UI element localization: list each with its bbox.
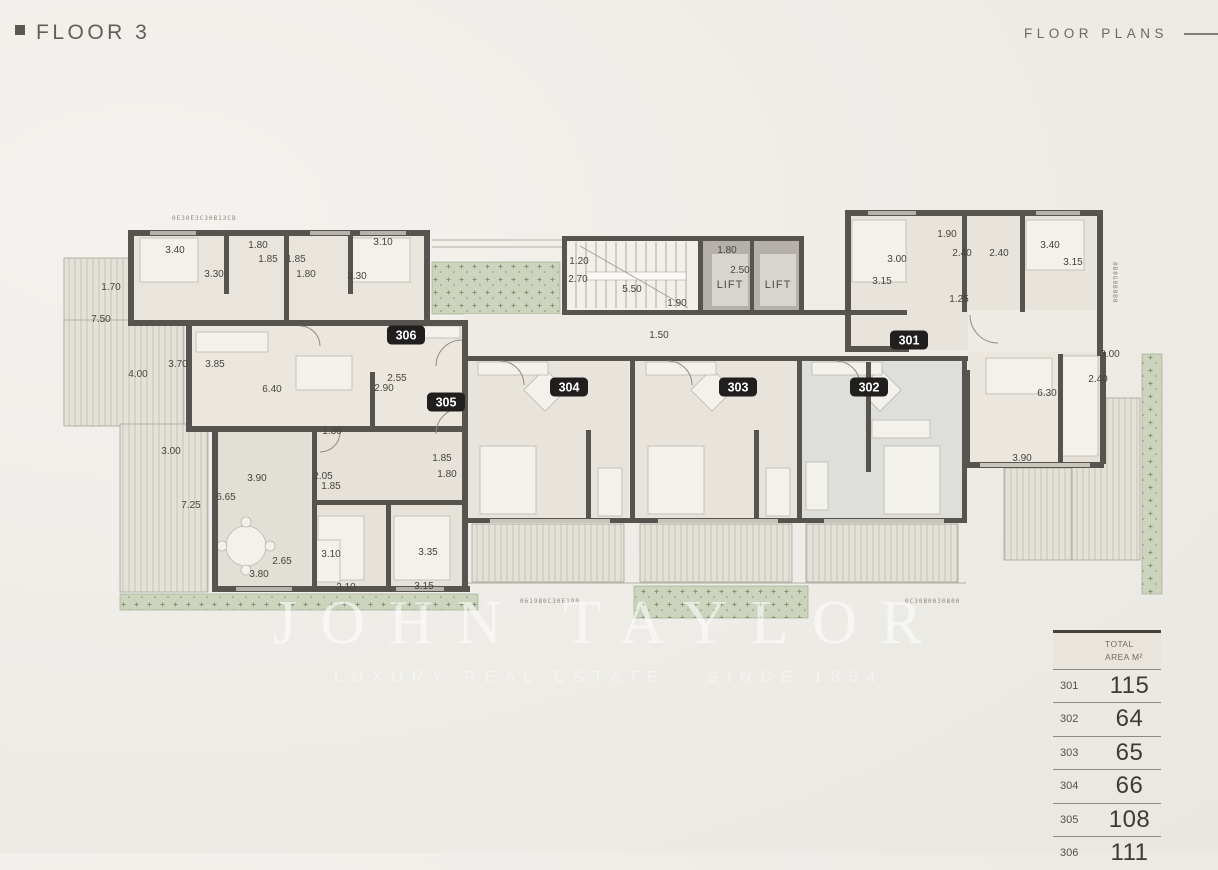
unit-badge-304: 304 — [550, 378, 588, 397]
section-rule — [1184, 33, 1218, 35]
dimension-label: 6.40 — [262, 384, 282, 395]
dimension-label: 1.85 — [432, 453, 452, 464]
dimension-label: 7.50 — [91, 314, 111, 325]
dimension-label: 1.25 — [949, 294, 969, 305]
dimension-label: 7.25 — [181, 500, 201, 511]
dimension-label: 1.85 — [321, 481, 341, 492]
dimension-label: 3.10 — [373, 237, 393, 248]
floor-plan-drawing: LIFT LIFT 3.401.801.851.853.103.301.803.… — [0, 0, 1218, 853]
unit-area-value: 115 — [1098, 672, 1161, 700]
dimension-label: 3.90 — [1012, 453, 1032, 464]
dimension-label: 1.85 — [286, 254, 306, 265]
dimension-label: 3.15 — [1063, 257, 1083, 268]
dimension-label: 3.10 — [321, 549, 341, 560]
table-row-305: 305108 — [1053, 804, 1161, 838]
dimension-label: 3.70 — [168, 359, 188, 370]
page-header: FLOOR 3 — [15, 21, 150, 45]
dimension-label: 1.90 — [937, 229, 957, 240]
dimension-label: 3.40 — [1040, 240, 1060, 251]
unit-number: 305 — [1053, 814, 1098, 826]
table-header: TOTAL AREA M² — [1053, 633, 1161, 670]
unit-badge-306: 306 — [387, 326, 425, 345]
dimension-label: 3.85 — [205, 359, 225, 370]
floor-plan-page: FLOOR 3 FLOOR PLANS — [0, 0, 1218, 853]
table-row-302: 30264 — [1053, 703, 1161, 737]
dimension-label: 2.40 — [989, 248, 1009, 259]
dimension-label: 1.50 — [649, 330, 669, 341]
section-header: FLOOR PLANS — [1024, 26, 1218, 41]
unit-number: 306 — [1053, 847, 1098, 859]
dimension-label: 3.30 — [347, 271, 367, 282]
unit-area-value: 108 — [1098, 806, 1161, 834]
lift-label-left: LIFT — [717, 279, 744, 291]
dimension-label: 3.30 — [204, 269, 224, 280]
unit-area-value: 111 — [1098, 839, 1161, 867]
svg-text:306: 306 — [396, 329, 417, 343]
table-header-line2: AREA M² — [1105, 651, 1155, 664]
table-row-301: 301115 — [1053, 670, 1161, 704]
svg-text:302: 302 — [859, 381, 880, 395]
dimension-label: 1.70 — [101, 282, 121, 293]
dimension-label: 3.00 — [1100, 349, 1120, 360]
unit-area-value: 66 — [1098, 772, 1161, 800]
area-table: TOTAL AREA M² 30111530264303653046630510… — [1053, 630, 1161, 870]
dimension-label: 3.00 — [887, 254, 907, 265]
dimension-label: 2.65 — [272, 556, 292, 567]
svg-text:303: 303 — [728, 381, 749, 395]
unit-area-value: 64 — [1098, 705, 1161, 733]
dimension-label: 3.40 — [165, 245, 185, 256]
dimension-label: 6.65 — [216, 492, 236, 503]
unit-badge-305: 305 — [427, 393, 465, 412]
dimension-label: 1.80 — [717, 245, 737, 256]
table-row-306: 306111 — [1053, 837, 1161, 870]
dimension-label: 1.80 — [296, 269, 316, 280]
dimension-label: 2.50 — [730, 265, 750, 276]
dimension-label: 3.10 — [336, 582, 356, 593]
unit-badge-302: 302 — [850, 378, 888, 397]
dimension-label: 2.40 — [1088, 374, 1108, 385]
lift-label-right: LIFT — [765, 279, 792, 291]
plan-code: 0B0G0B0B0 — [1111, 262, 1118, 304]
dimension-label: 1.80 — [248, 240, 268, 251]
dimension-label: 3.00 — [161, 446, 181, 457]
page-title: FLOOR 3 — [36, 21, 150, 45]
unit-number: 304 — [1053, 780, 1098, 792]
svg-text:304: 304 — [559, 381, 580, 395]
unit-badge-301: 301 — [890, 331, 928, 350]
dimension-label: 2.40 — [952, 248, 972, 259]
dimension-label: 1.30 — [322, 426, 342, 437]
dimension-label: 5.50 — [622, 284, 642, 295]
dimension-label: 1.90 — [667, 298, 687, 309]
unit-number: 303 — [1053, 747, 1098, 759]
section-label: FLOOR PLANS — [1024, 26, 1168, 41]
table-header-line1: TOTAL — [1105, 638, 1155, 651]
dimension-label: 3.15 — [414, 581, 434, 592]
table-row-303: 30365 — [1053, 737, 1161, 771]
dimension-label: 3.90 — [247, 473, 267, 484]
dimension-label: 3.35 — [418, 547, 438, 558]
unit-number: 301 — [1053, 680, 1098, 692]
unit-area-value: 65 — [1098, 739, 1161, 767]
unit-number: 302 — [1053, 713, 1098, 725]
plan-code: 0E30E3C30B13CB — [172, 215, 237, 222]
dimension-label: 1.85 — [258, 254, 278, 265]
title-bullet-icon — [15, 25, 25, 35]
svg-text:301: 301 — [899, 334, 920, 348]
dimension-label: 2.70 — [568, 274, 588, 285]
dimension-label: 3.15 — [872, 276, 892, 287]
dimension-label: 6.30 — [1037, 388, 1057, 399]
dimension-label: 1.20 — [569, 256, 589, 267]
table-row-304: 30466 — [1053, 770, 1161, 804]
plan-code: 0C30B0030B00 — [905, 598, 960, 605]
dimension-label: 4.00 — [128, 369, 148, 380]
svg-text:305: 305 — [436, 396, 457, 410]
dimension-label: 3.80 — [249, 569, 269, 580]
unit-badge-303: 303 — [719, 378, 757, 397]
dimension-label: 1.80 — [437, 469, 457, 480]
dimension-label: 2.90 — [374, 383, 394, 394]
plan-code: 0619B0C30E190 — [520, 598, 580, 605]
area-table-rows: 301115302643036530466305108306111 — [1053, 670, 1161, 870]
